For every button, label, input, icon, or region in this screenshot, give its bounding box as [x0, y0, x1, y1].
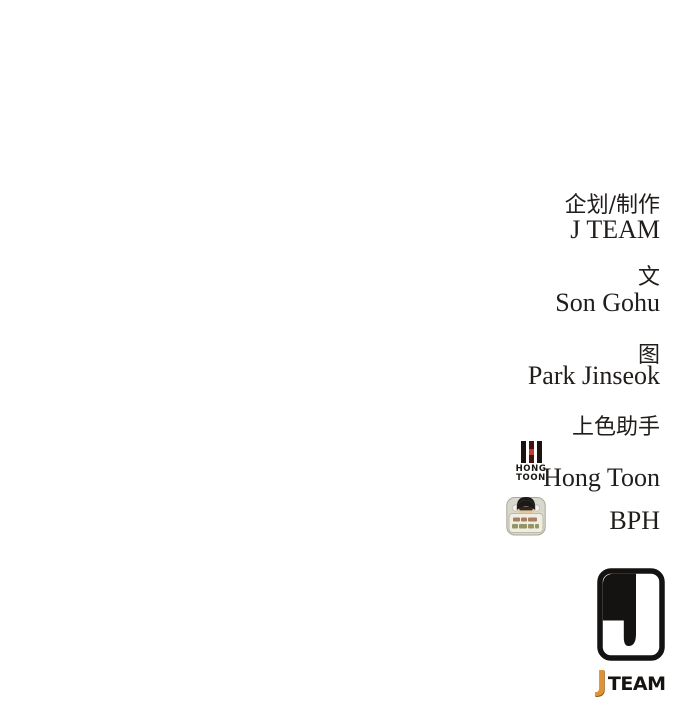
hongtoon-bar-right	[537, 441, 542, 463]
production-role-label: 企划/制作	[565, 195, 660, 217]
bph-badge-icon	[506, 494, 546, 536]
jteam-wordmark-j: J	[597, 667, 607, 695]
hongtoon-logo: HONG TOON	[513, 441, 549, 483]
jteam-wordmark: J TEAM	[595, 667, 667, 695]
jteam-wordmark-team: TEAM	[608, 675, 666, 694]
credits-page: 企划/制作 J TEAM 文 Son Gohu 图 Park Jinseok 上…	[0, 0, 690, 715]
writer-role-label: 文	[638, 267, 660, 289]
coloring-role-label: 上色助手	[572, 417, 660, 439]
hongtoon-text-line2: TOON	[513, 474, 549, 483]
coloring-name-hongtoon-label: Hong Toon	[543, 465, 660, 491]
jteam-logo: J TEAM	[595, 568, 667, 695]
jteam-mark-icon	[597, 568, 665, 661]
hongtoon-bars-icon	[513, 441, 549, 463]
production-name-label: J TEAM	[570, 217, 660, 243]
hongtoon-bar-middle	[529, 441, 534, 463]
artist-name-label: Park Jinseok	[528, 363, 660, 389]
bph-badge-svg	[506, 494, 546, 536]
hongtoon-bar-left	[521, 441, 526, 463]
writer-name-label: Son Gohu	[555, 290, 660, 316]
coloring-name-bph-label: BPH	[609, 508, 660, 534]
